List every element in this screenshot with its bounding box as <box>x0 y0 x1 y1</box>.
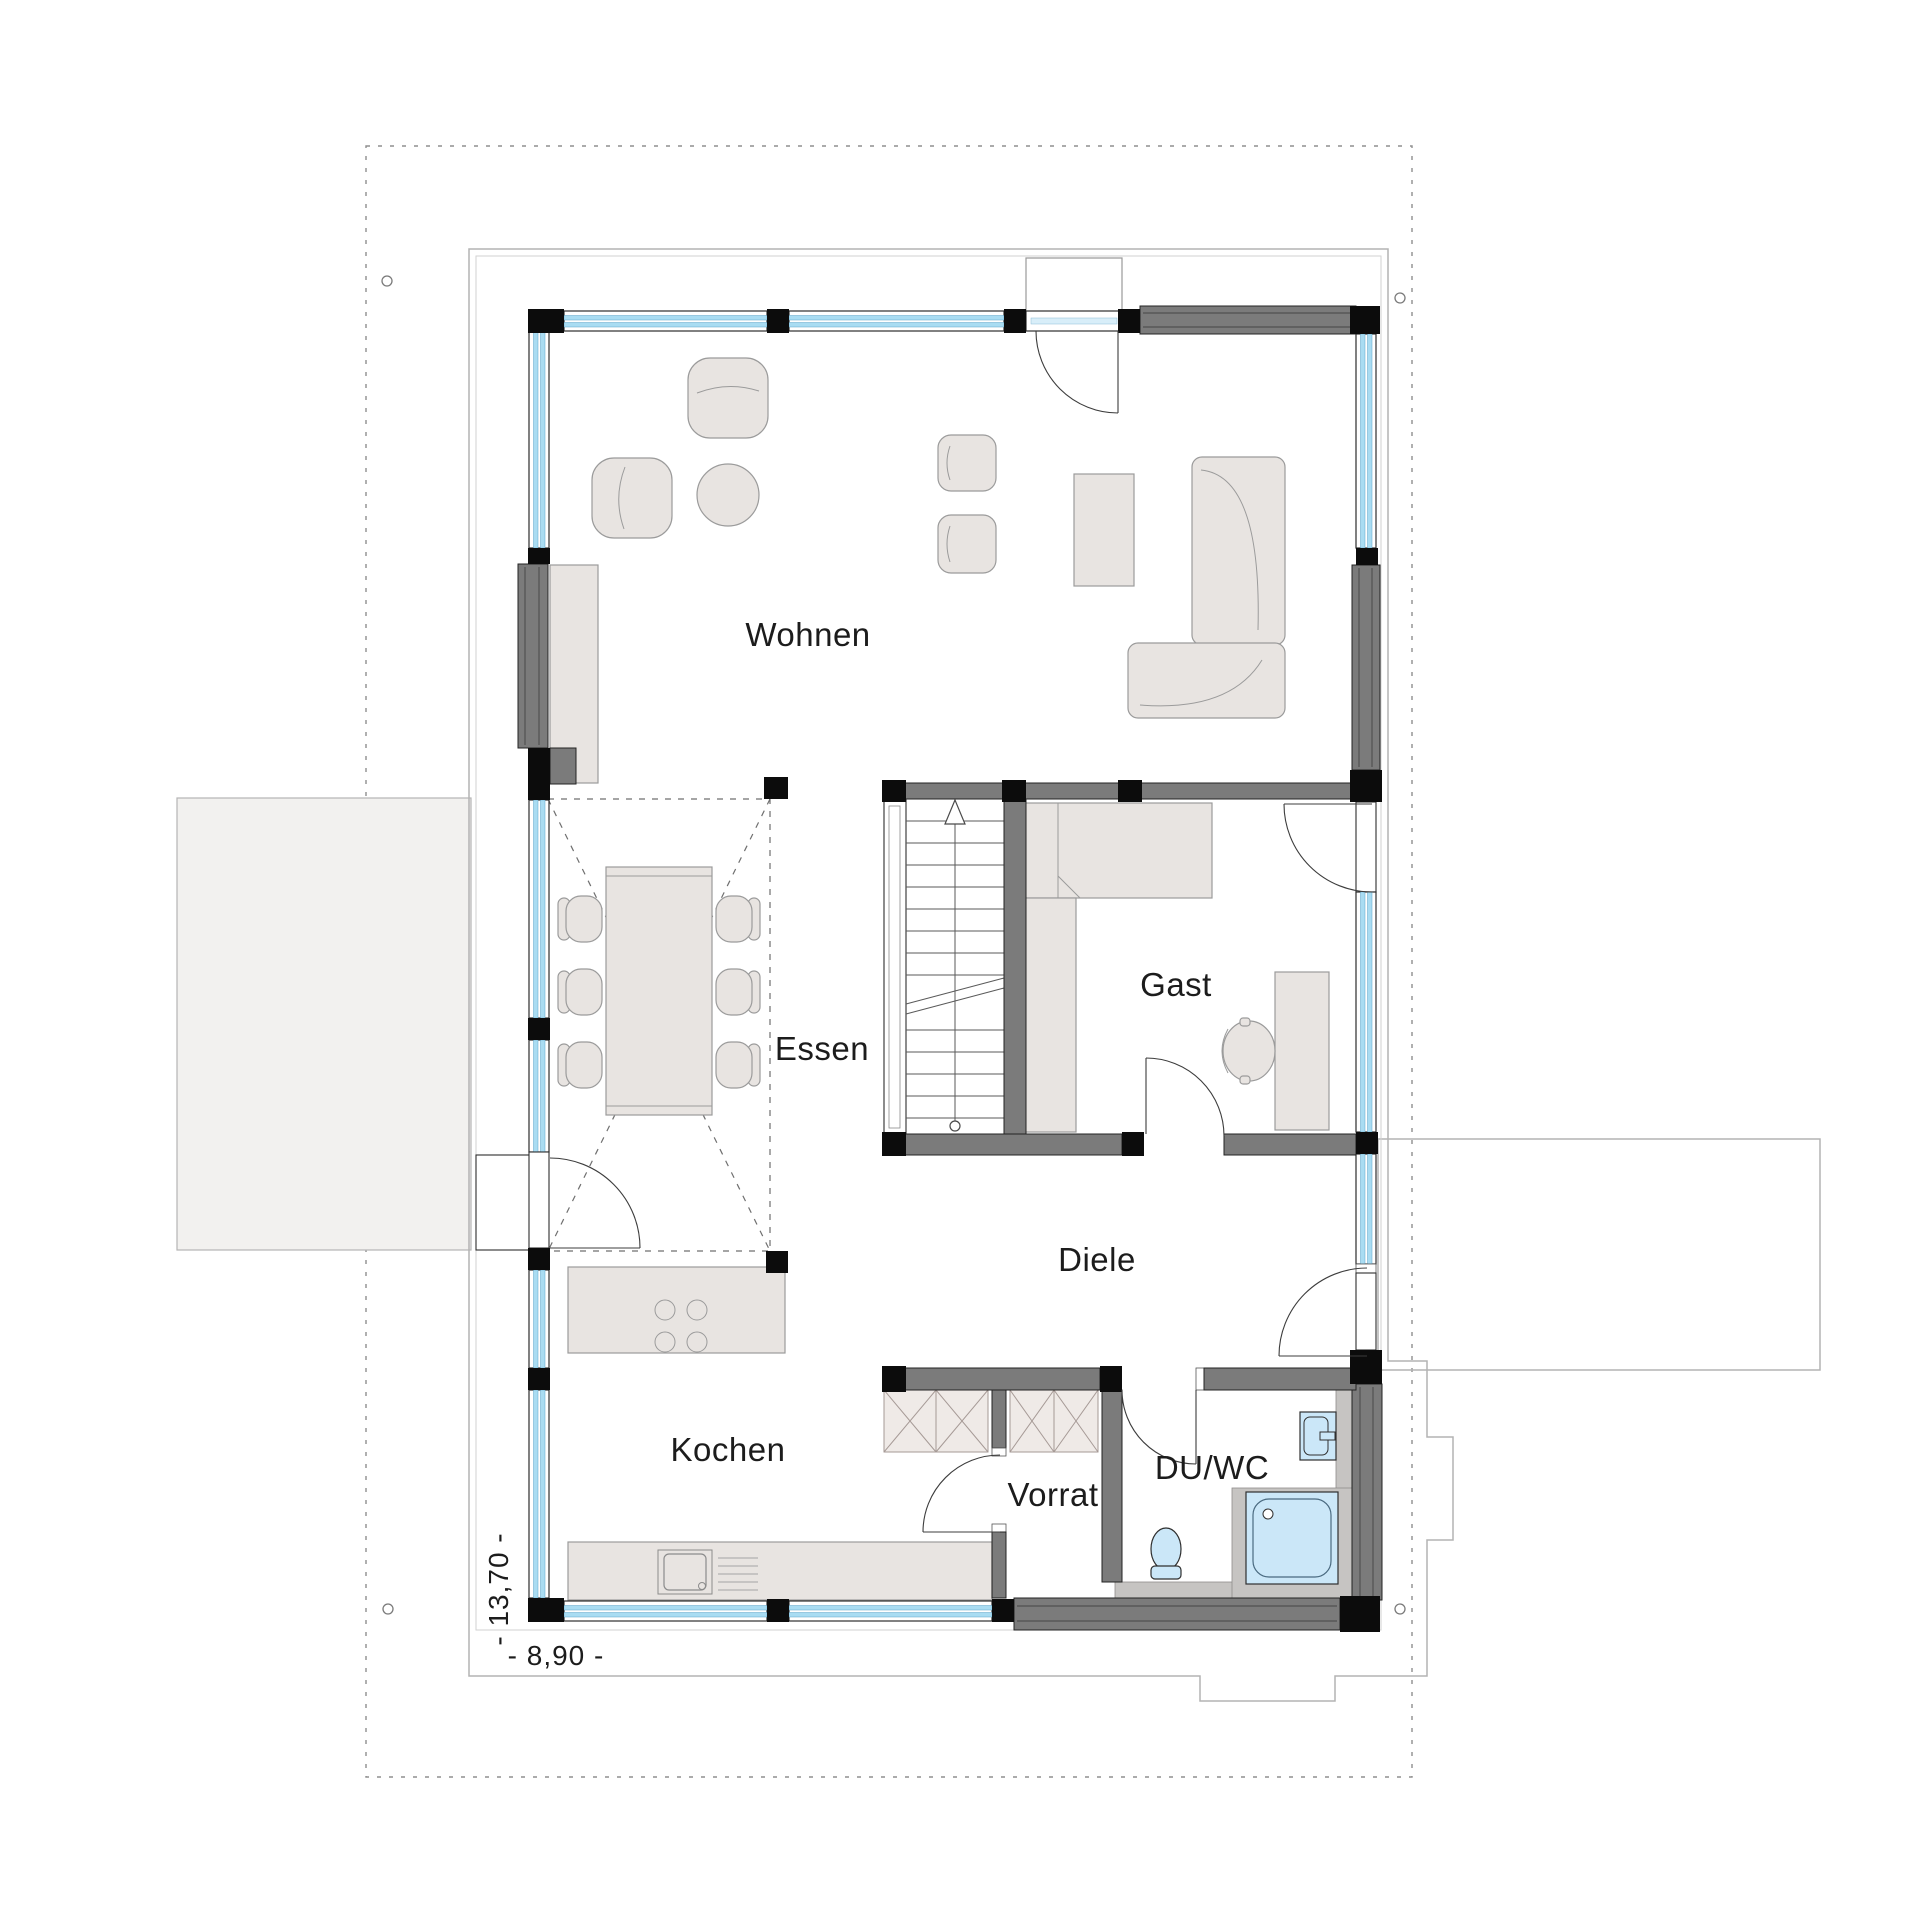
pantry-shelves <box>884 1390 1098 1452</box>
shower <box>1246 1492 1338 1584</box>
pantry-door <box>923 1455 1000 1532</box>
entry-door-top <box>1036 331 1118 413</box>
entry-landing <box>476 1155 537 1250</box>
wall-pantry-top-a <box>884 1368 1100 1390</box>
roof-marker-top-right <box>1395 293 1405 303</box>
roof-marker-bottom-left <box>383 1604 393 1614</box>
kitchen-island <box>568 1267 785 1353</box>
entry-niche <box>1026 258 1122 312</box>
wall-top-right <box>1140 306 1356 334</box>
wall-right-living <box>1352 565 1380 770</box>
wall-gast-bottom-a <box>884 1134 1122 1155</box>
room-label-essen: Essen <box>775 1030 869 1068</box>
chair <box>716 896 752 942</box>
wall-gast-bottom-b <box>1224 1134 1356 1155</box>
terrace-door-left <box>550 1158 640 1248</box>
toilet <box>1151 1528 1181 1579</box>
main-entry-door-right <box>1279 1268 1367 1356</box>
dining-table <box>606 867 712 1115</box>
room-label-gast: Gast <box>1140 966 1212 1004</box>
chair <box>716 1042 752 1088</box>
room-label-wohnen: Wohnen <box>745 616 870 654</box>
dining-furniture <box>558 867 760 1115</box>
coffee-table <box>1074 474 1134 586</box>
armchair <box>688 358 768 438</box>
dimension-width: - 8,90 - <box>508 1640 605 1672</box>
roof-marker-bottom-right <box>1395 1604 1405 1614</box>
wall-pantry-bath-divider <box>1102 1390 1122 1582</box>
stair-wall-right <box>1004 799 1026 1135</box>
wall-pantry-left-b <box>992 1532 1006 1598</box>
floorplan-drawing <box>0 0 1920 1920</box>
wall-chimney-block <box>518 564 548 748</box>
room-label-diele: Diele <box>1058 1241 1136 1279</box>
chair <box>566 969 602 1015</box>
stair-railing <box>884 799 906 1135</box>
wall-bottom-right <box>1014 1598 1340 1630</box>
room-label-vorrat: Vorrat <box>1007 1476 1098 1514</box>
room-label-duwc: DU/WC <box>1155 1449 1269 1487</box>
office-chair <box>1223 1021 1275 1081</box>
kitchen-counter <box>568 1542 992 1600</box>
room-label-kochen: Kochen <box>671 1431 786 1469</box>
wall-pantry-top-b <box>1204 1368 1356 1390</box>
sofa-short <box>1128 643 1285 718</box>
chair <box>716 969 752 1015</box>
desk <box>1275 972 1329 1130</box>
wall-pantry-left-a <box>992 1390 1006 1448</box>
guest-ext-door-opening <box>1356 802 1376 892</box>
floorplan-page: Wohnen Essen Gast Diele Kochen Vorrat DU… <box>0 0 1920 1920</box>
chair <box>566 896 602 942</box>
terrace-door-opening <box>529 1152 549 1248</box>
stairs <box>884 799 1004 1135</box>
living-furniture <box>550 358 1285 783</box>
chair <box>566 1042 602 1088</box>
side-table <box>697 464 759 526</box>
closet <box>1022 803 1212 898</box>
carport <box>177 798 471 1250</box>
closet <box>1018 898 1076 1132</box>
sofa-long <box>1192 457 1285 645</box>
terrace-right <box>1378 1139 1820 1370</box>
roof-marker-top-left <box>382 276 392 286</box>
dimension-height: - 13,70 - <box>483 1532 515 1645</box>
washbasin <box>1300 1412 1336 1460</box>
wall-right-bath <box>1352 1384 1382 1600</box>
armchair <box>592 458 672 538</box>
main-entry-opening <box>1356 1273 1376 1350</box>
guest-room-door <box>1146 1058 1224 1136</box>
